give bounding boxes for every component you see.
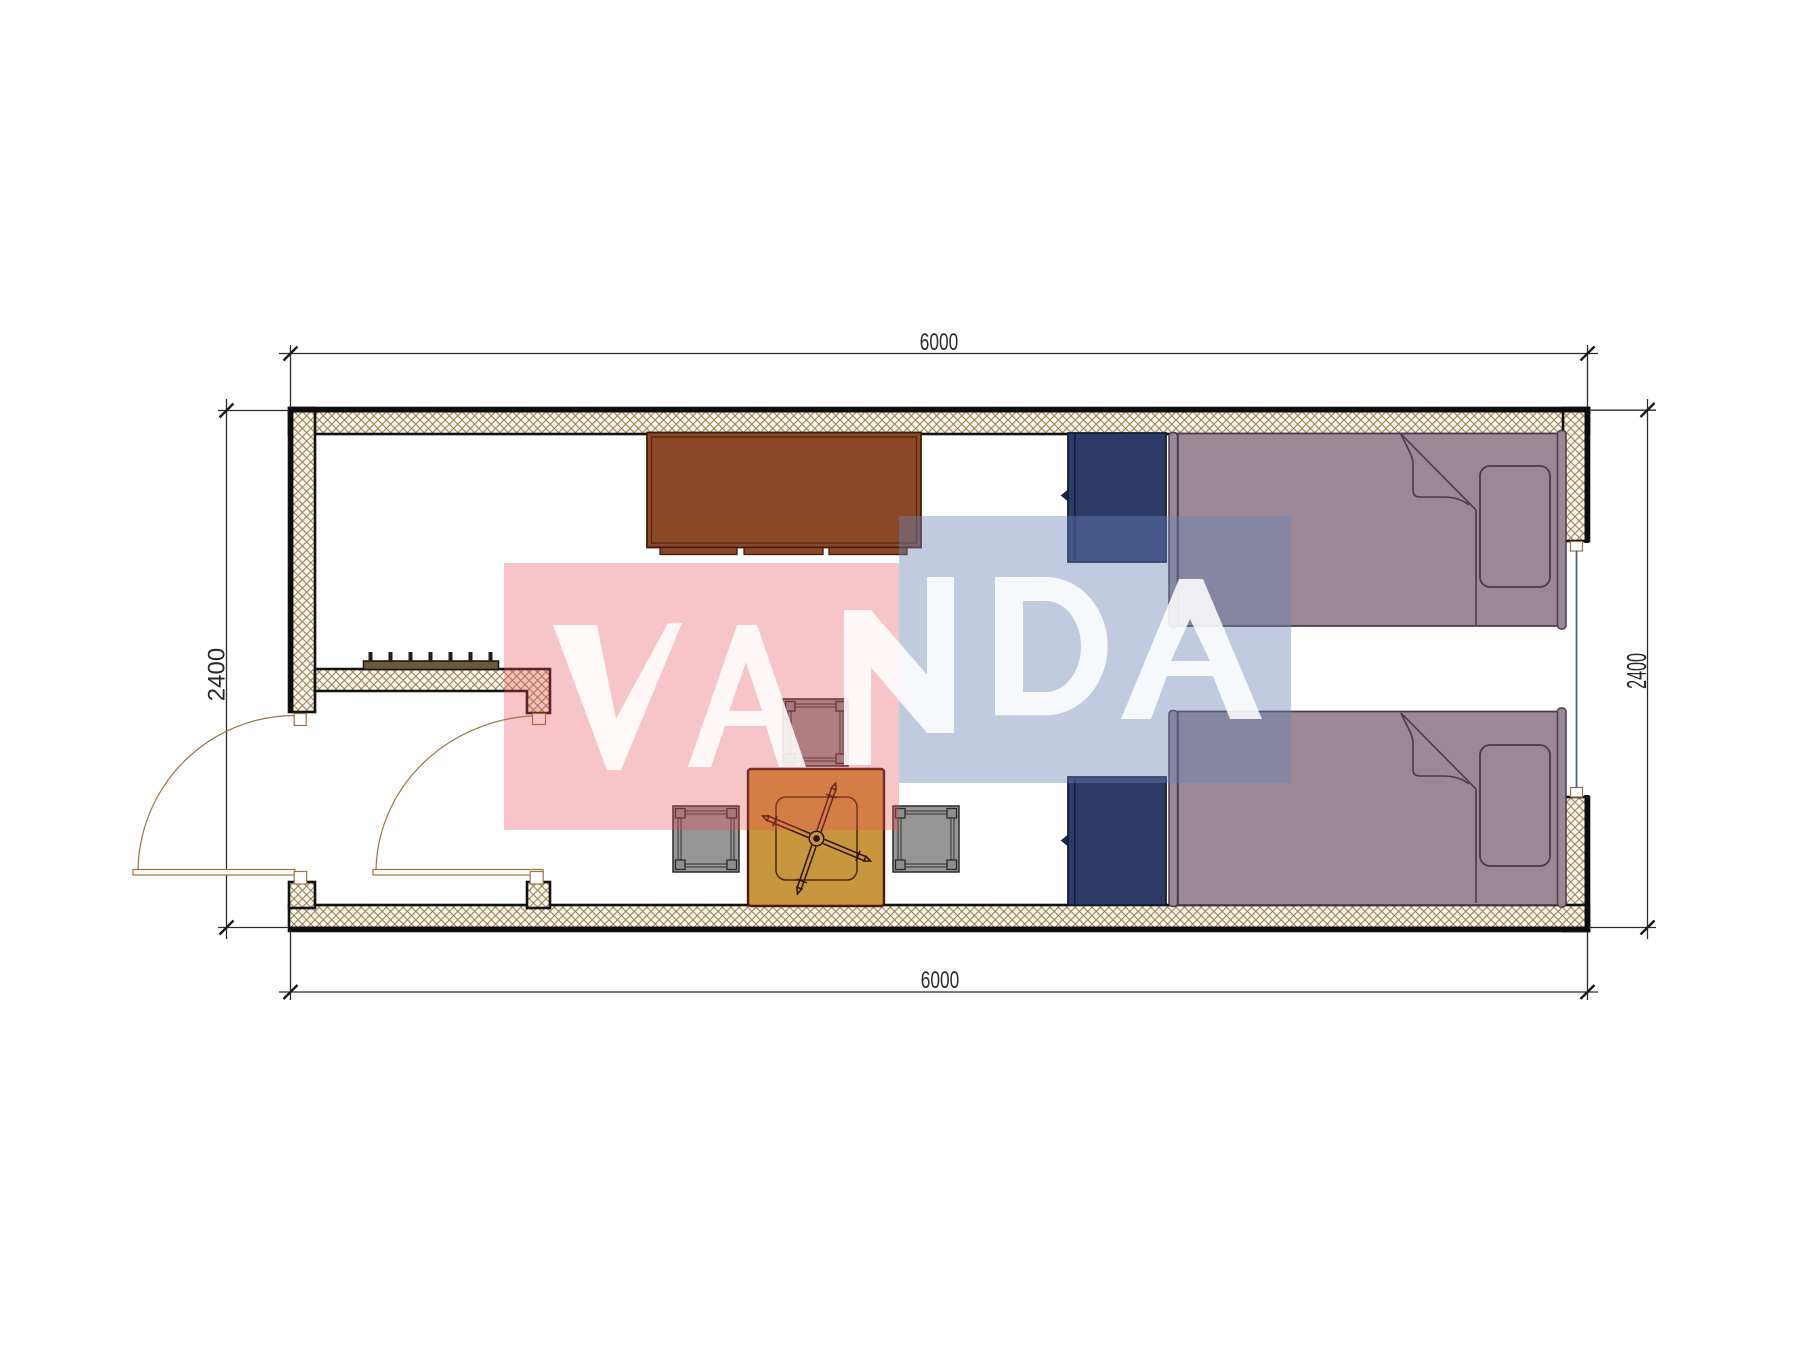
svg-text:6000: 6000	[921, 967, 959, 993]
svg-text:6000: 6000	[920, 329, 958, 355]
svg-text:2400: 2400	[204, 648, 231, 701]
svg-text:2400: 2400	[1620, 653, 1652, 689]
